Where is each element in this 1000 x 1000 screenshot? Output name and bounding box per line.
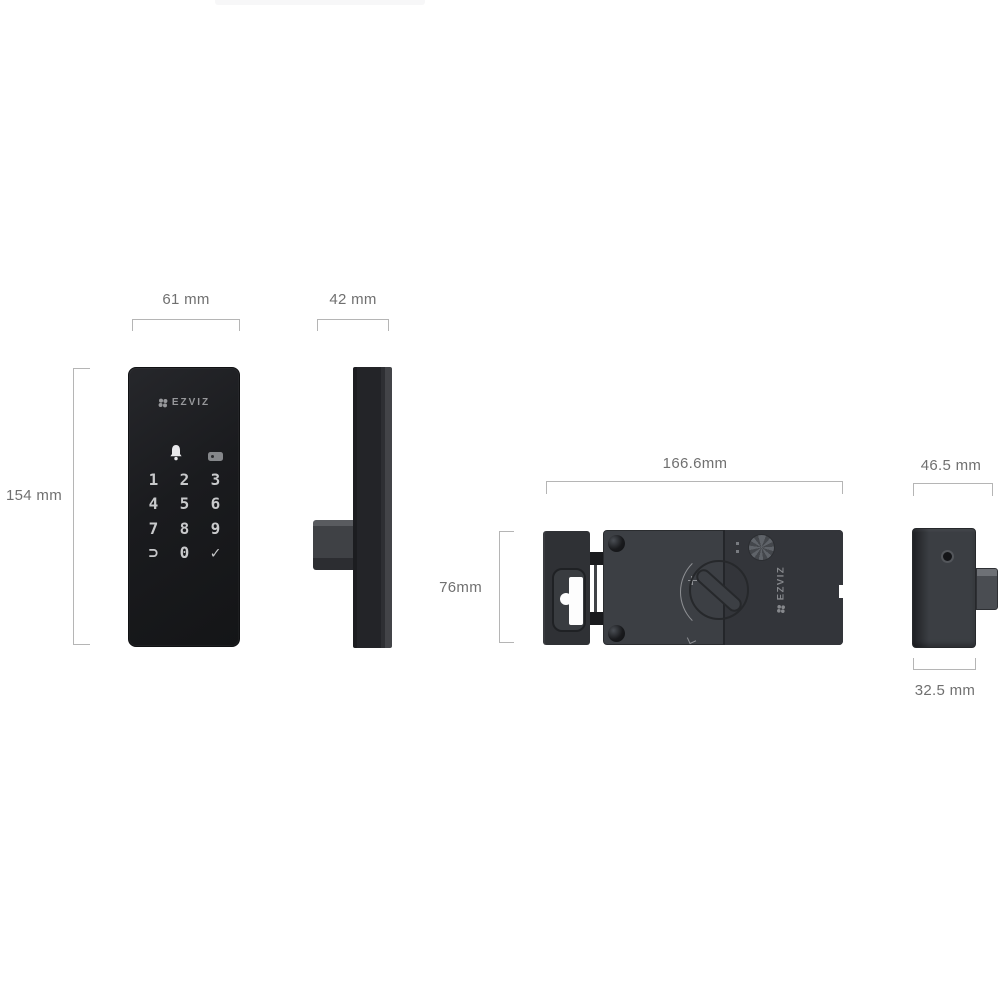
- side-width-bracket: [317, 319, 389, 331]
- screw-icon: [608, 535, 625, 552]
- keypad-key-4: 4: [138, 492, 169, 517]
- bell-icon: [168, 444, 184, 463]
- rfid-card-icon: [208, 452, 223, 461]
- keypad-key-0: 0: [169, 541, 200, 566]
- rear-side-width-label: 46.5 mm: [905, 457, 997, 474]
- keypad-key-5: 5: [169, 492, 200, 517]
- keypad-key-6: 6: [200, 492, 231, 517]
- strike-plate: [543, 531, 590, 645]
- ezviz-logo: EZVIZ: [129, 397, 239, 408]
- rear-lock-side-view: [912, 528, 1000, 648]
- deadbolt-cylinder: [313, 520, 355, 570]
- ezviz-logo-rotated: EZVIZ: [775, 558, 788, 622]
- keypad-key-1: 1: [138, 467, 169, 492]
- keypad-key-back-icon: ⊃: [138, 541, 169, 566]
- rear-side-width-bracket: [913, 483, 993, 496]
- mount-pin: [594, 565, 597, 612]
- keypad-key-9: 9: [200, 516, 231, 541]
- ezviz-logo-text: EZVIZ: [776, 566, 787, 600]
- ezviz-flower-icon: [777, 604, 786, 613]
- mount-tab-top: [590, 552, 604, 565]
- keypad-grid: 1 2 3 4 5 6 7 8 9 ⊃ 0 ✓: [138, 467, 231, 565]
- front-height-bracket: [73, 368, 90, 645]
- keypad-key-3: 3: [200, 467, 231, 492]
- front-width-bracket: [132, 319, 240, 331]
- front-height-label: 154 mm: [6, 487, 60, 504]
- ezviz-flower-icon: [158, 398, 168, 408]
- indicator-dot: [736, 550, 739, 553]
- cropped-top-element: [215, 0, 425, 5]
- thumbturn-dial: [689, 560, 749, 620]
- indicator-dot: [736, 542, 739, 545]
- screw-icon: [608, 625, 625, 642]
- thumbturn-handle: [693, 566, 745, 615]
- knurled-knob: [748, 534, 775, 561]
- latch-bolt: [976, 568, 998, 610]
- rear-lock-side-body: [912, 528, 976, 648]
- rear-side-depth-bracket: [913, 658, 976, 670]
- ezviz-logo-text: EZVIZ: [172, 397, 210, 408]
- keypad-key-2: 2: [169, 467, 200, 492]
- rear-height-label: 76mm: [434, 579, 482, 596]
- rear-side-depth-label: 32.5 mm: [905, 682, 985, 699]
- keypad-key-check-icon: ✓: [200, 541, 231, 566]
- strike-slot: [569, 577, 583, 625]
- keypad-key-7: 7: [138, 516, 169, 541]
- front-width-label: 61 mm: [132, 291, 240, 308]
- keypad-front-view: EZVIZ 1 2 3 4 5 6 7 8 9 ⊃ 0 ✓: [128, 367, 240, 647]
- mount-tab-bottom: [590, 612, 604, 625]
- rear-height-bracket: [499, 531, 514, 643]
- side-width-label: 42 mm: [317, 291, 389, 308]
- rear-width-label: 166.6mm: [595, 455, 795, 472]
- rear-lock-unit-view: EZVIZ: [543, 528, 845, 648]
- rear-width-bracket: [546, 481, 843, 494]
- keypad-key-8: 8: [169, 516, 200, 541]
- keypad-side-view: [353, 367, 392, 648]
- cover-notch: [839, 585, 846, 598]
- screw-icon: [941, 550, 954, 563]
